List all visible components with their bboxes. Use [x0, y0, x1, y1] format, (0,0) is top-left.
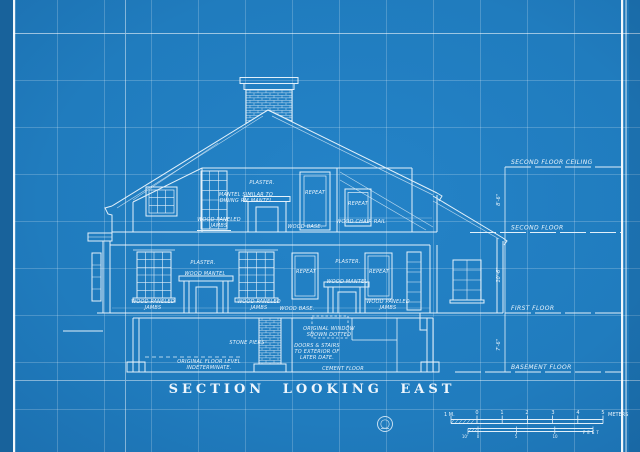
drawing-title: SECTION LOOKING EAST [169, 382, 456, 397]
ann-ff-mantel-right: WOOD MANTEL [327, 279, 368, 285]
wing-window [450, 260, 484, 303]
ann-bs-cement-floor: CEMENT FLOOR [322, 366, 364, 372]
scale-m5: 5 [601, 410, 604, 416]
ann-bs-doors-note-3: LATER DATE. [300, 355, 334, 361]
ann-bs-floor-note-2: INDETERMINATE. [186, 365, 231, 371]
label-second-floor: SECOND FLOOR [511, 225, 564, 232]
first-floor-door-left [292, 253, 318, 299]
attic-dormer-window [146, 187, 177, 216]
ann-ff-repeat-left: REPEAT [296, 269, 317, 275]
scale-m2: 2 [525, 410, 528, 416]
scale-meters-left-label: 1 M. [444, 412, 455, 418]
ann-ff-wood-base: WOOD BASE. [279, 306, 314, 312]
scale-m0: 0 [475, 410, 478, 416]
ann-attic-repeat-left: REPEAT [305, 190, 326, 196]
ann-ff-plaster-left: PLASTER. [190, 260, 215, 266]
meters-scale-bar [451, 416, 603, 424]
ann-ff-plaster-right: PLASTER. [335, 259, 360, 265]
label-first-floor: FIRST FLOOR [511, 305, 554, 312]
ann-attic-wood-base: WOOD BASE. [287, 224, 322, 230]
scale-f10: 10 [552, 434, 558, 439]
blueprint-drawing: SECOND FLOOR CEILING SECOND FLOOR FIRST … [0, 0, 640, 452]
ann-attic-mantel-note-2: DINING RM MANTEL [220, 198, 273, 204]
chimney [240, 78, 298, 124]
scale-feet-unit: FEET [583, 430, 601, 435]
ann-attic-chair-rail: WOOD CHAIR RAIL [336, 219, 386, 225]
scale-meters-unit: METERS [608, 412, 628, 418]
ann-ff-jambs-mid-2: JAMBS [250, 305, 268, 311]
first-floor-fireplace-right [324, 282, 369, 313]
ann-attic-repeat-right: REPEAT [348, 201, 369, 207]
ann-ff-jambs-right-2: JAMBS [379, 305, 397, 311]
first-floor-door-right [365, 253, 392, 299]
ann-ff-repeat-right: REPEAT [369, 269, 390, 275]
scale-feet-left-label: 10' [462, 434, 468, 439]
scale-f5: 5 [515, 434, 518, 439]
label-basement-floor: BASEMENT FLOOR [511, 364, 572, 371]
dim-second-to-first: 10'-6" [496, 267, 502, 282]
dim-first-to-basement: 7'-6" [496, 339, 502, 351]
stamp-icon [378, 417, 393, 432]
label-second-floor-ceiling: SECOND FLOOR CEILING [511, 159, 593, 166]
ann-attic-plaster: PLASTER. [249, 180, 274, 186]
first-floor-window-left [133, 250, 175, 302]
ann-bs-window-note-2: SHOWN DOTTED [307, 332, 351, 338]
dim-ceiling-to-second: 8'-6" [496, 194, 502, 206]
first-floor-window-mid [235, 250, 278, 302]
ann-attic-jambs-2: JAMBS [210, 223, 228, 229]
blueprint-sheet: SECOND FLOOR CEILING SECOND FLOOR FIRST … [0, 0, 640, 452]
scale-m3: 3 [551, 410, 554, 416]
ann-ff-jambs-left-2: JAMBS [144, 305, 162, 311]
scale-f0: 0 [477, 434, 480, 439]
floor-reference-lines [445, 167, 621, 372]
ann-bs-stone-piers: STONE PIERS [229, 340, 265, 346]
first-floor-fireplace-left [179, 276, 233, 313]
ann-ff-mantel-left: WOOD MANTEL [185, 271, 226, 277]
scale-m4: 4 [576, 410, 579, 416]
scale-m1: 1 [500, 410, 503, 416]
